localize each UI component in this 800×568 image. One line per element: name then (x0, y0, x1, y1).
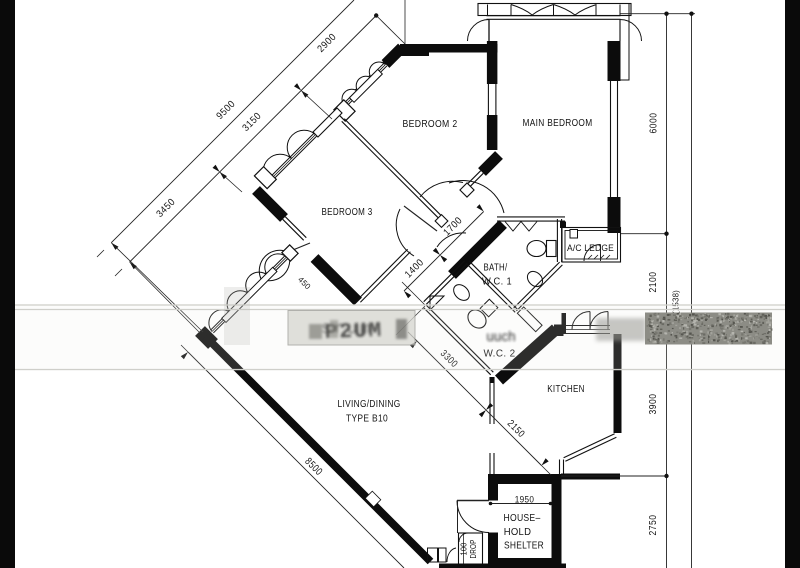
svg-text:100: 100 (460, 542, 469, 555)
svg-text:6000: 6000 (649, 113, 660, 134)
svg-text:1950: 1950 (515, 495, 535, 506)
svg-text:2100: 2100 (648, 272, 659, 293)
svg-text:2750: 2750 (648, 515, 659, 536)
svg-text:HOLD: HOLD (504, 527, 532, 538)
svg-text:KITCHEN: KITCHEN (547, 383, 585, 395)
svg-text:A/C LEDGE: A/C LEDGE (567, 243, 614, 253)
svg-text:srum: srum (320, 320, 373, 340)
svg-text:BEDROOM 2: BEDROOM 2 (403, 118, 458, 130)
svg-text:TYPE B10: TYPE B10 (346, 413, 388, 425)
svg-text:HOUSE–: HOUSE– (504, 513, 541, 524)
svg-text:BEDROOM 3: BEDROOM 3 (322, 206, 373, 218)
svg-text:BATH/: BATH/ (484, 262, 508, 274)
svg-text:MAIN BEDROOM: MAIN BEDROOM (523, 117, 593, 129)
svg-text:W.C. 1: W.C. 1 (482, 276, 512, 288)
svg-text:SHELTER: SHELTER (504, 541, 544, 552)
svg-text:DROP: DROP (469, 539, 478, 558)
svg-text:LIVING/DINING: LIVING/DINING (338, 398, 401, 410)
svg-text:uuch: uuch (486, 329, 515, 344)
svg-text:3900: 3900 (648, 394, 659, 415)
